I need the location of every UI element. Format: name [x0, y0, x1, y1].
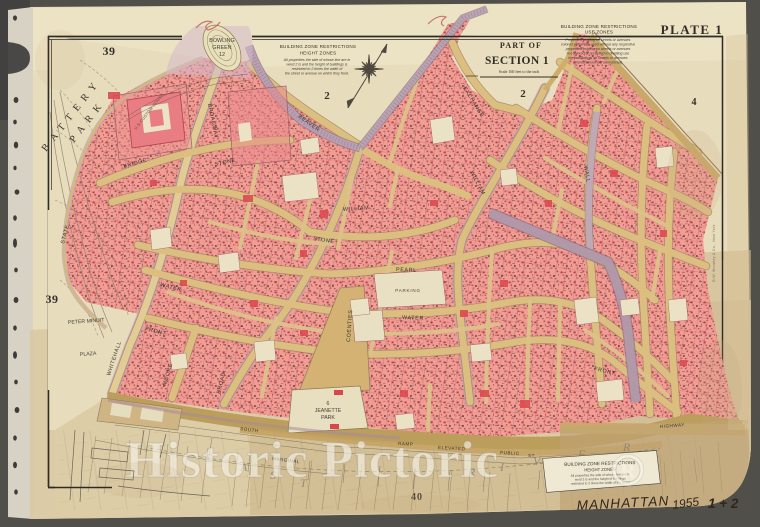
svg-text:word 2 is and the height of bu: word 2 is and the height of buildings is — [287, 63, 348, 67]
svg-text:these frontings on streets or: these frontings on streets or avenues — [568, 56, 627, 60]
svg-text:G.W. Bromley & Co., New York: G.W. Bromley & Co., New York — [712, 224, 716, 282]
svg-text:PLATE 1: PLATE 1 — [661, 22, 724, 37]
svg-text:HEIGHT ZONES: HEIGHT ZONES — [300, 51, 337, 56]
svg-text:GREEN: GREEN — [212, 45, 231, 51]
svg-text:properties fronting on streets: properties fronting on streets or avenue… — [565, 47, 631, 51]
svg-text:2: 2 — [324, 90, 330, 102]
svg-text:Scale 160 feet to the inch: Scale 160 feet to the inch — [499, 69, 540, 74]
svg-text:R: R — [620, 459, 636, 483]
svg-text:2: 2 — [520, 88, 526, 100]
svg-text:USE ZONES: USE ZONES — [585, 30, 613, 35]
svg-text:R: R — [622, 440, 631, 454]
svg-text:1 + 2: 1 + 2 — [708, 496, 739, 511]
svg-text:6: 6 — [327, 401, 330, 407]
svg-text:PARKING: PARKING — [395, 288, 421, 293]
svg-text:WATER: WATER — [402, 315, 424, 322]
svg-text:12: 12 — [219, 52, 225, 58]
svg-text:BUILDING ZONE RESTRICTIONS: BUILDING ZONE RESTRICTIONS — [280, 44, 356, 49]
svg-text:39: 39 — [103, 44, 116, 58]
svg-text:39: 39 — [46, 292, 59, 306]
svg-text:All properties the side of who: All properties the side of whose line ar… — [283, 58, 351, 62]
svg-text:PUBLIC: PUBLIC — [500, 450, 520, 456]
svg-text:PEARL: PEARL — [396, 267, 417, 274]
svg-text:restricted to 2 times the widt: restricted to 2 times the width of — [292, 67, 344, 71]
svg-text:colored yellow are used withou: colored yellow are used without any resp… — [561, 43, 635, 47]
svg-text:SECTION 1: SECTION 1 — [485, 55, 549, 67]
svg-text:the street or avenue on which: the street or avenue on which they front… — [285, 72, 349, 76]
svg-text:JEANETTE: JEANETTE — [315, 408, 342, 414]
svg-text:colored brown are unrestricted: colored brown are unrestricted. — [573, 61, 623, 65]
svg-text:not colored or restricted to d: not colored or restricted to dwelling us… — [567, 52, 630, 56]
svg-text:PARK: PARK — [321, 415, 335, 421]
svg-text:4: 4 — [692, 97, 697, 108]
svg-text:PLAZA: PLAZA — [80, 351, 97, 358]
svg-text:BUILDING ZONE RESTRICTIONS: BUILDING ZONE RESTRICTIONS — [561, 24, 637, 29]
svg-text:HEIGHT ZONES: HEIGHT ZONES — [584, 467, 616, 473]
svg-text:BOWLING: BOWLING — [209, 38, 234, 44]
svg-text:Properties fronting on streets: Properties fronting on streets or avenue… — [566, 38, 631, 42]
svg-text:PART OF: PART OF — [500, 41, 542, 50]
